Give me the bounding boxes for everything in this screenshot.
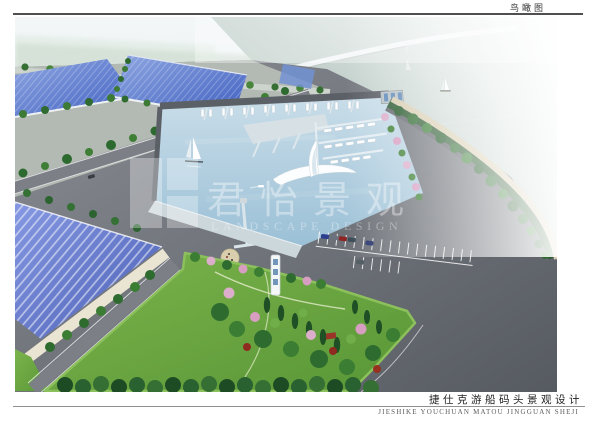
project-title-cn: 捷仕克游船码头景观设计 bbox=[429, 392, 583, 407]
watermark-brand-en: LANDSCAPE DESIGN bbox=[211, 219, 402, 233]
bottom-rule bbox=[13, 406, 585, 407]
project-title-pinyin: JIESHIKE YOUCHUAN MATOU JINGGUAN SHEJI bbox=[378, 408, 579, 416]
top-rule bbox=[13, 13, 583, 15]
watermark-brand-cn: 君怡景观 bbox=[207, 178, 419, 222]
aerial-rendering: 君怡景观 LANDSCAPE DESIGN bbox=[15, 17, 557, 392]
sign-tower bbox=[271, 255, 280, 295]
presentation-sheet: 鸟瞰图 bbox=[0, 0, 600, 425]
top-haze bbox=[195, 17, 557, 63]
